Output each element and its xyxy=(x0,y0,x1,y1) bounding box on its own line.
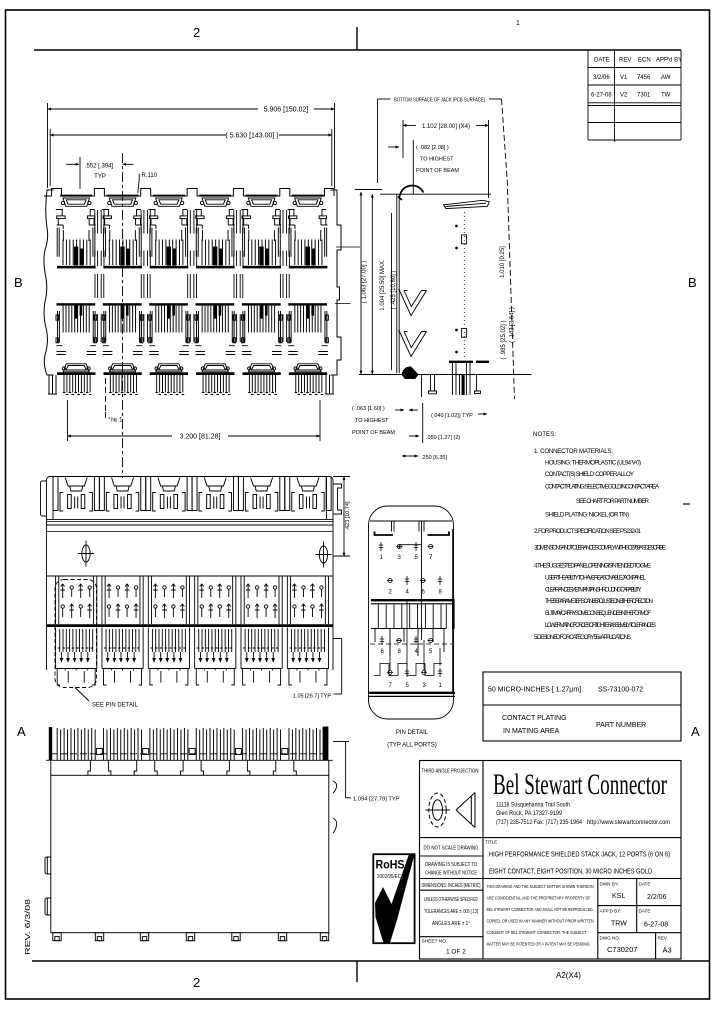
svg-text:6-27-08: 6-27-08 xyxy=(644,922,668,929)
svg-text:2: 2 xyxy=(193,25,200,40)
svg-text:Glen Rock, PA 17327-9199: Glen Rock, PA 17327-9199 xyxy=(496,811,563,817)
svg-text:( 1.063 [27.00] ): ( 1.063 [27.00] ) xyxy=(362,261,368,303)
svg-text:CONTACT PLATING: SELECTIVE GO: CONTACT PLATING: SELECTIVE GOLD IN CONTA… xyxy=(545,484,660,491)
svg-text:2/2/06: 2/2/06 xyxy=(647,894,667,901)
svg-text:SS-73100-072: SS-73100-072 xyxy=(598,687,643,694)
svg-text:KSL: KSL xyxy=(612,893,625,900)
svg-text:A: A xyxy=(17,724,26,739)
svg-text:V2: V2 xyxy=(620,93,628,99)
svg-text:1. CONNECTOR MATERIALS:: 1. CONNECTOR MATERIALS: xyxy=(534,448,613,455)
svg-text:1.094 [27.79] TYP: 1.094 [27.79] TYP xyxy=(353,797,400,803)
svg-text:TRW: TRW xyxy=(611,921,627,928)
svg-text:.423 [10.74]: .423 [10.74] xyxy=(345,501,351,531)
svg-text:SEE CHART FOR PART NUMBER: SEE CHART FOR PART NUMBER xyxy=(576,498,650,505)
svg-text:TO HIGHEST: TO HIGHEST xyxy=(420,157,454,163)
svg-text:B: B xyxy=(14,275,23,290)
svg-text:AW: AW xyxy=(661,75,671,81)
svg-text:( .063 [1.60] ): ( .063 [1.60] ) xyxy=(352,406,385,412)
svg-text:DATE: DATE xyxy=(594,58,610,64)
svg-text:CHANGE WITHOUT NOTICE: CHANGE WITHOUT NOTICE xyxy=(425,871,477,877)
svg-text:CONTACT PLATING: CONTACT PLATING xyxy=(502,715,567,722)
svg-text:.250 [6.35]: .250 [6.35] xyxy=(421,455,447,461)
svg-text:1.102 [28.00] (X4): 1.102 [28.00] (X4) xyxy=(422,124,470,130)
svg-text:BEL STEWART CONNECTOR AND SHAL: BEL STEWART CONNECTOR AND SHALL NOT BE R… xyxy=(487,907,594,912)
svg-text:5. DESIGNED FOR CATEGORY 5/5: 5. DESIGNED FOR CATEGORY 5/5e APPLICATIO… xyxy=(534,634,631,641)
svg-text:ARE CONFIDENTIAL AND THE PROPR: ARE CONFIDENTIAL AND THE PROPRIETARY PRO… xyxy=(487,896,591,901)
svg-text:TITLE: TITLE xyxy=(485,840,497,845)
svg-text:B: B xyxy=(688,275,697,290)
svg-text:( .425 [10.80] ): ( .425 [10.80] ) xyxy=(391,270,397,309)
svg-text:1.010 [0.25]: 1.010 [0.25] xyxy=(500,246,506,278)
svg-text:HOUSING: THERMOPLASTIC (UL94: HOUSING: THERMOPLASTIC (UL94 V-0) xyxy=(545,460,641,467)
svg-text:7456: 7456 xyxy=(637,75,651,81)
svg-text:R.110: R.110 xyxy=(142,173,158,179)
svg-text:ANGLES ARE ± 1°: ANGLES ARE ± 1° xyxy=(432,921,470,927)
svg-text:DIMENSIONS: INCHES [METRIC]: DIMENSIONS: INCHES [METRIC] xyxy=(422,883,481,889)
svg-text:1.05 [26.7] TYP: 1.05 [26.7] TYP xyxy=(293,694,331,700)
svg-text:MATTER MAY BE PATENTED OR A PA: MATTER MAY BE PATENTED OR A PATENT MAY B… xyxy=(487,942,591,947)
svg-text:EIGHT CONTACT, EIGHT POSITION,: EIGHT CONTACT, EIGHT POSITION, 30 MICRO … xyxy=(489,867,652,876)
svg-text:USER THE ABILITY TO HAVE REASO: USER THE ABILITY TO HAVE REASONABLE JACK… xyxy=(545,575,647,582)
svg-text:REV. 6/3/08: REV. 6/3/08 xyxy=(25,899,32,955)
svg-text:REV.: REV. xyxy=(658,936,668,941)
svg-text:SHIELD PLATING: NICKEL (OR TI: SHIELD PLATING: NICKEL (OR TIN) xyxy=(545,512,629,519)
svg-text:DWG NO.: DWG NO. xyxy=(600,936,621,941)
svg-text:COPIED, OR USED IN ANY MANNER: COPIED, OR USED IN ANY MANNER WITHOUT PR… xyxy=(487,919,594,924)
svg-text:(717) 235-7512 Fax: (717) 23: (717) 235-7512 Fax: (717) 235-1964 xyxy=(496,820,583,826)
svg-text:TW: TW xyxy=(661,93,671,99)
svg-text:.050 [1.27] (2): .050 [1.27] (2) xyxy=(426,435,460,441)
svg-text:5.906 [150.02]: 5.906 [150.02] xyxy=(264,107,309,114)
svg-text:3/2/06: 3/2/06 xyxy=(593,75,610,81)
svg-text:4. THE SUGGESTED PANEL OPENIN: 4. THE SUGGESTED PANEL OPENING IS INTEND… xyxy=(534,563,651,570)
svg-text:CONTACT(S) SHIELD: COPPER ALL: CONTACT(S) SHIELD: COPPER ALLOY xyxy=(545,471,634,478)
svg-text:A2(X4): A2(X4) xyxy=(556,971,581,980)
svg-text:http://www.stewartconnector.co: http://www.stewartconnector.com xyxy=(587,820,670,826)
svg-text:SEE PIN DETAIL: SEE PIN DETAIL xyxy=(92,703,139,709)
svg-text:DATE: DATE xyxy=(639,909,651,914)
svg-text:PART NUMBER: PART NUMBER xyxy=(596,722,646,729)
svg-text:ECN: ECN xyxy=(638,58,651,64)
svg-text:TOLERANCES ARE ± .005 [.13]: TOLERANCES ARE ± .005 [.13] xyxy=(424,909,478,915)
svg-text:APP'd BY: APP'd BY xyxy=(656,58,682,64)
svg-text:THESE PARAMETERS CAN BE ADJUST: THESE PARAMETERS CAN BE ADJUSTED IN EITH… xyxy=(545,598,653,605)
svg-text:APP'D BY:: APP'D BY: xyxy=(600,909,622,914)
svg-text:11118 Susquehanna Trail South: 11118 Susquehanna Trail South xyxy=(496,803,570,809)
svg-text:TYP: TYP xyxy=(94,174,106,180)
svg-text:DWN BY:: DWN BY: xyxy=(600,882,619,887)
svg-text:PIN DETAIL: PIN DETAIL xyxy=(396,730,429,736)
svg-text:BOTTOM SURFACE OF JACK (PCB SU: BOTTOM SURFACE OF JACK (PCB SURFACE) xyxy=(394,98,485,104)
svg-text:( .082 [2.08] ): ( .082 [2.08] ) xyxy=(416,145,449,151)
svg-text:REV: REV xyxy=(619,58,631,64)
svg-text:( 5.630 [143.00] ): ( 5.630 [143.00] ) xyxy=(225,133,278,140)
svg-text:(TYP ALL PORTS): (TYP ALL PORTS) xyxy=(387,743,437,749)
svg-text:7301: 7301 xyxy=(637,93,651,99)
svg-text:.552 [.394]: .552 [.394] xyxy=(85,164,114,170)
svg-text:( .985 [25.02] ): ( .985 [25.02] ) xyxy=(501,320,507,359)
svg-text:V1: V1 xyxy=(620,75,628,81)
svg-text:TO HIGHEST: TO HIGHEST xyxy=(355,418,389,424)
svg-text:A: A xyxy=(691,724,700,739)
svg-text:CLEARANCES, YET MAINTAIN SHROU: CLEARANCES, YET MAINTAIN SHROUDING CAPAB… xyxy=(545,587,641,594)
svg-text:NOTES:: NOTES: xyxy=(533,431,556,438)
svg-text:3.200 [81.28]: 3.200 [81.28] xyxy=(180,434,221,441)
svg-text:UNLESS OTHERWISE SPECIFIED: UNLESS OTHERWISE SPECIFIED xyxy=(424,897,478,903)
svg-text:CONSENT OF BEL STEWART CONNECT: CONSENT OF BEL STEWART CONNECTOR. THE SU… xyxy=(487,930,587,935)
svg-text:1: 1 xyxy=(516,20,520,27)
svg-text:A3: A3 xyxy=(663,946,672,955)
svg-text:RoHS: RoHS xyxy=(376,860,405,872)
svg-text:№ 1: № 1 xyxy=(111,417,123,424)
svg-text:LOWER MATING FORCES OR TIGHTER: LOWER MATING FORCES OR TIGHTER ASSEMBLY … xyxy=(545,622,656,629)
svg-text:50 MICRO-INCHES [ 1.27μm]: 50 MICRO-INCHES [ 1.27μm] xyxy=(488,687,581,694)
svg-text:IN MATING AREA: IN MATING AREA xyxy=(503,728,560,735)
svg-text:THIS DRAWING AND THE SUBJECT M: THIS DRAWING AND THE SUBJECT MATTER SHOW… xyxy=(487,884,594,889)
svg-text:2. FOR PRODUCT SPECIFICATION: 2. FOR PRODUCT SPECIFICATION SEE PS232-0… xyxy=(534,528,642,535)
svg-text:C730207: C730207 xyxy=(607,945,637,954)
svg-text:DATE: DATE xyxy=(639,882,651,887)
svg-text:DRAWING IS SUBJECT TO: DRAWING IS SUBJECT TO xyxy=(425,862,477,868)
svg-text:THIRD ANGLE PROJECTION: THIRD ANGLE PROJECTION xyxy=(422,769,479,775)
svg-text:POINT OF BEAM: POINT OF BEAM xyxy=(416,168,459,174)
svg-text:HIGH PERFORMANCE SHIELDED STAC: HIGH PERFORMANCE SHIELDED STACK JACK, 12… xyxy=(489,850,670,859)
svg-text:3. DIMENSIONS AND TOLERANCES: 3. DIMENSIONS AND TOLERANCES COMPLY WITH… xyxy=(534,545,666,552)
svg-text:BUT MAY CARRY SOME CONSEQUENCE: BUT MAY CARRY SOME CONSEQUENCES IN THE F… xyxy=(545,610,651,617)
svg-text:2002/95/EC: 2002/95/EC xyxy=(377,874,401,880)
svg-text:( .143 [3.64] ): ( .143 [3.64] ) xyxy=(510,307,516,343)
svg-text:Bel Stewart Connector: Bel Stewart Connector xyxy=(493,768,667,801)
svg-text:POINT OF BEAM: POINT OF BEAM xyxy=(352,430,395,436)
svg-text:2: 2 xyxy=(193,975,200,990)
svg-text:1 OF 2: 1 OF 2 xyxy=(446,949,466,956)
svg-text:SHEET NO.: SHEET NO. xyxy=(422,939,448,945)
svg-text:1.004 [25.50] MAX.: 1.004 [25.50] MAX. xyxy=(380,259,386,311)
svg-text:(.040 [1.02]) TYP: (.040 [1.02]) TYP xyxy=(431,413,473,419)
svg-text:DO NOT SCALE DRAWING: DO NOT SCALE DRAWING xyxy=(424,846,479,852)
svg-text:6-27-08: 6-27-08 xyxy=(591,93,612,99)
